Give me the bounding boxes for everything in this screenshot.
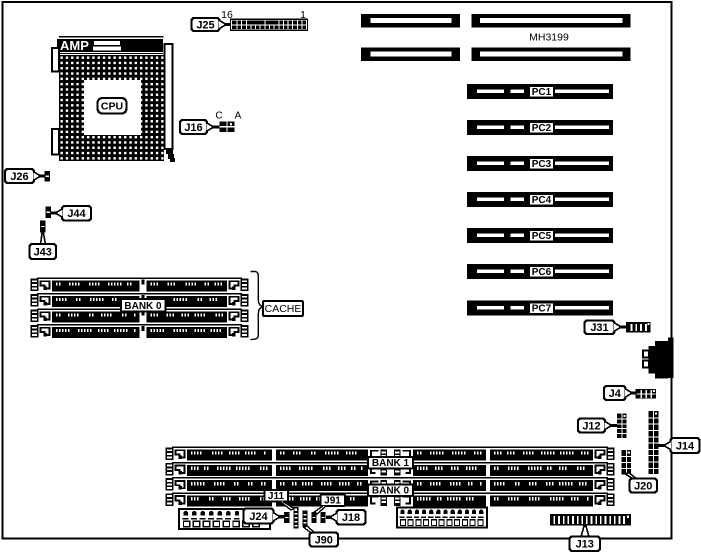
svg-text:CACHE: CACHE bbox=[265, 303, 302, 315]
svg-text:J20: J20 bbox=[634, 480, 652, 492]
svg-text:PC7: PC7 bbox=[532, 304, 552, 315]
svg-text:BANK 0: BANK 0 bbox=[372, 485, 410, 496]
svg-text:PC3: PC3 bbox=[532, 159, 552, 170]
svg-text:BANK 0: BANK 0 bbox=[124, 301, 162, 312]
svg-text:PC5: PC5 bbox=[532, 231, 552, 242]
svg-text:MH3199: MH3199 bbox=[529, 32, 569, 44]
svg-text:J91: J91 bbox=[324, 496, 341, 507]
svg-text:PC6: PC6 bbox=[532, 267, 552, 278]
svg-text:J31: J31 bbox=[590, 322, 608, 334]
svg-text:J11: J11 bbox=[268, 491, 285, 502]
svg-text:BANK 1: BANK 1 bbox=[372, 458, 410, 469]
svg-text:J14: J14 bbox=[676, 440, 695, 452]
svg-text:J43: J43 bbox=[34, 246, 52, 258]
svg-text:J4: J4 bbox=[609, 388, 622, 400]
svg-text:J90: J90 bbox=[315, 534, 333, 546]
svg-text:J25: J25 bbox=[196, 19, 214, 31]
svg-text:PC1: PC1 bbox=[532, 87, 552, 98]
svg-text:J26: J26 bbox=[10, 171, 28, 183]
svg-text:C: C bbox=[215, 111, 222, 122]
svg-text:CPU: CPU bbox=[101, 100, 123, 112]
svg-text:J16: J16 bbox=[184, 122, 202, 134]
svg-text:PC2: PC2 bbox=[532, 123, 552, 134]
svg-text:J18: J18 bbox=[342, 512, 360, 524]
svg-text:J12: J12 bbox=[582, 420, 600, 432]
svg-text:J13: J13 bbox=[576, 539, 594, 551]
svg-text:J44: J44 bbox=[67, 208, 86, 220]
svg-text:AMP: AMP bbox=[60, 38, 89, 53]
svg-text:J24: J24 bbox=[249, 511, 268, 523]
svg-text:PC4: PC4 bbox=[532, 195, 552, 206]
svg-text:A: A bbox=[235, 111, 242, 122]
